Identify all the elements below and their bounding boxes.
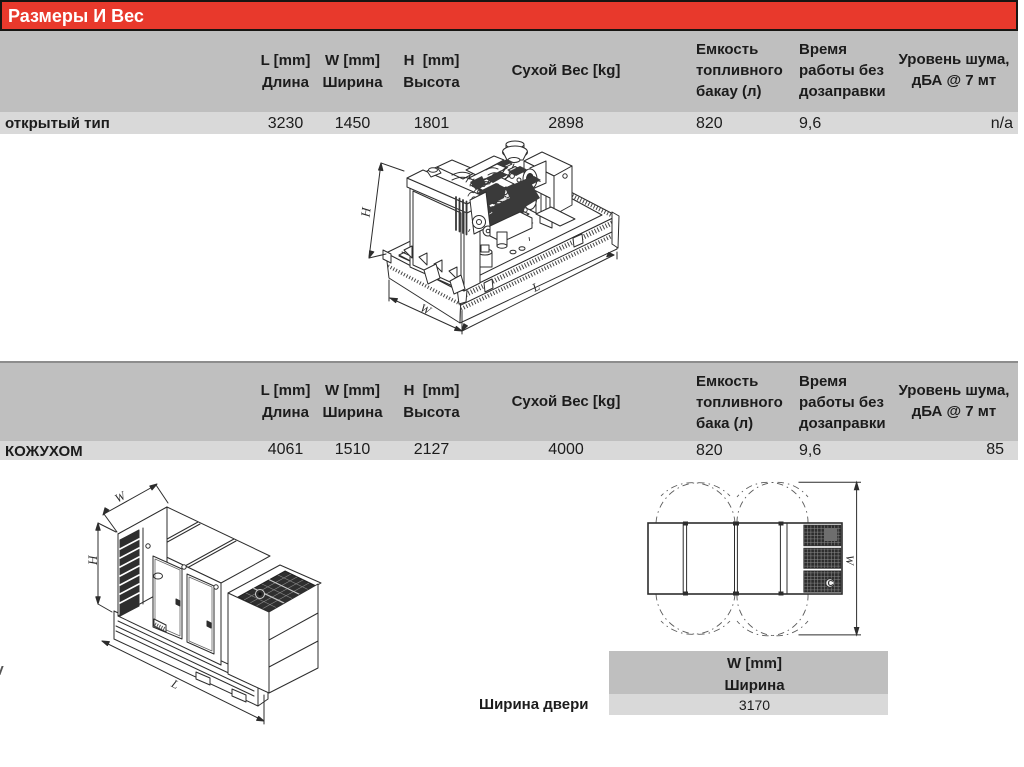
svg-text:L: L: [168, 676, 182, 692]
svg-text:C: C: [828, 579, 834, 588]
svg-text:H: H: [85, 555, 100, 566]
svg-text:W: W: [843, 555, 857, 566]
svg-text:W: W: [112, 488, 128, 506]
svg-text:W: W: [418, 301, 434, 318]
svg-text:H: H: [357, 206, 373, 219]
